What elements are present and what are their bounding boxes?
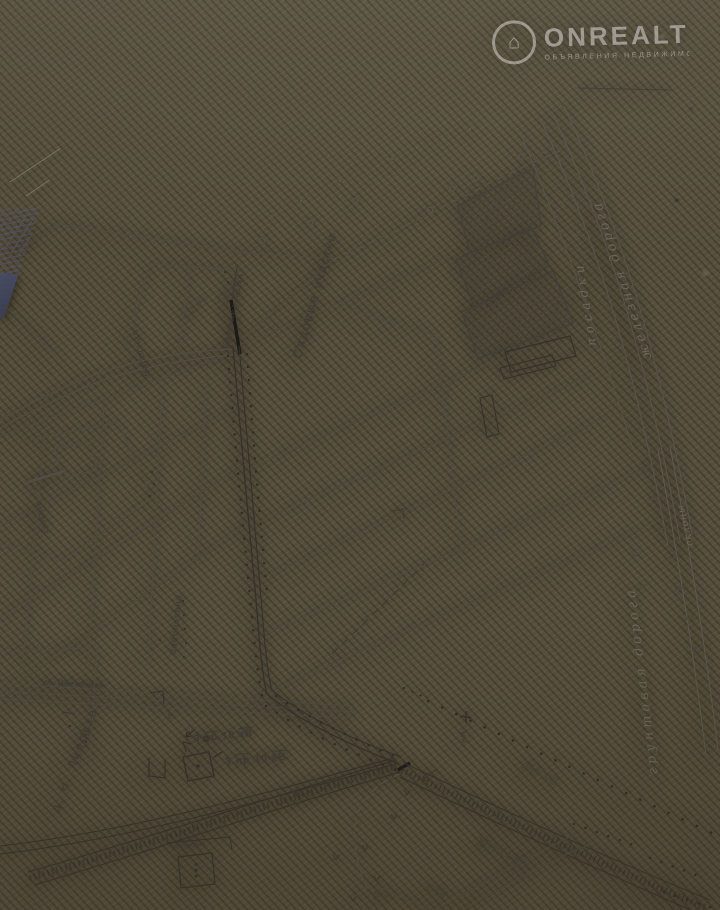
hatched-areas [456, 168, 573, 359]
label-part: 10 [221, 730, 235, 742]
south-roads [0, 758, 710, 910]
watermark: ⌂ ONREALT ОБЪЯВЛЕНИЯ НЕДВИЖИМОСТИ [491, 15, 716, 65]
mn-label: мн [459, 731, 469, 744]
transformer-label: тр [166, 712, 174, 720]
photo-of-survey-map: Насосная Садовые участки Садовые участки… [0, 0, 720, 910]
main-road [228, 268, 410, 770]
power-lines [186, 688, 714, 908]
stream-lines [0, 349, 234, 497]
label-part: 10 [254, 752, 269, 765]
label-part: пр [235, 754, 251, 767]
house-icon: ⌂ [491, 20, 536, 65]
pen-marks [63, 88, 672, 901]
label-part: 3 [193, 733, 201, 745]
label-part: 3 [224, 755, 232, 768]
watermark-text: ONREALT ОБЪЯВЛЕНИЯ НЕДВИЖИМОСТИ [544, 18, 717, 61]
map-line-art [0, 0, 720, 910]
watermark-brand: ONREALT [544, 18, 717, 53]
label-part: кВ [238, 728, 253, 740]
label-part: пр [204, 731, 219, 743]
label-part: кВ [271, 751, 287, 764]
